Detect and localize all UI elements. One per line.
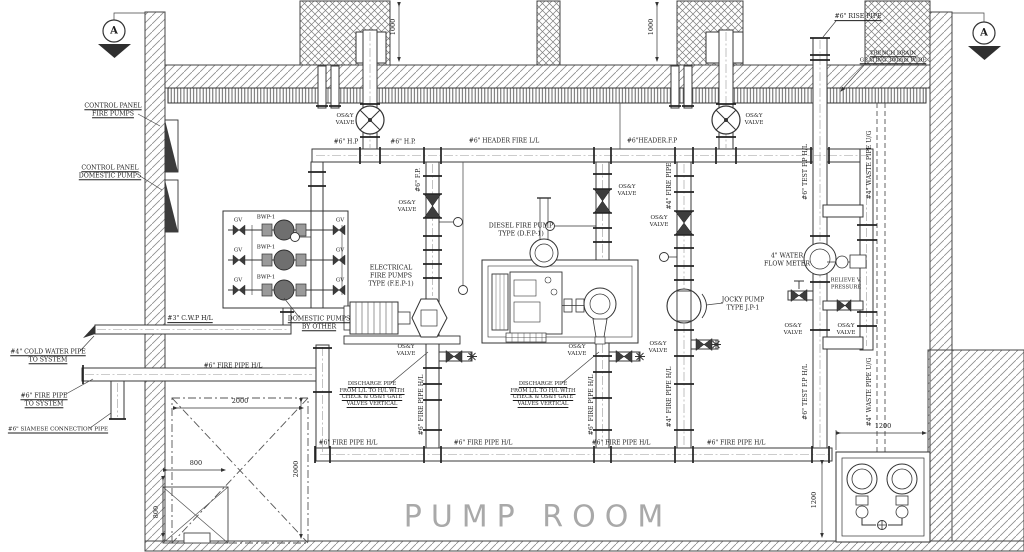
label-osy-valve-riser2: OS&Y VALVE <box>618 184 637 198</box>
label-bwp-1: BWP-1 <box>257 215 275 222</box>
label-header-fire: #6" HEADER FIRE L/L <box>469 137 539 145</box>
label-hp-2: #6" H.P. <box>390 138 415 146</box>
label-bwp-3: BWP-1 <box>257 275 275 282</box>
dim-800-top: 800 <box>190 459 202 467</box>
label-waste-pipe-bottom: #4" WASTE PIPE U/G <box>866 358 874 427</box>
label-discharge-note-2: DISCHARGE PIPE FROM L/L TO H/L WITH CHEC… <box>510 381 575 407</box>
label-control-panel-fire-pumps: CONTROL PANEL FIRE PUMPS <box>84 102 141 118</box>
label-electrical-fire-pumps: ELECTRICAL FIRE PUMPS TYPE (F.E.P-1) <box>368 264 413 287</box>
label-rise-pipe: #6" RISE PIPE <box>834 13 881 21</box>
label-osy-valve-riser2-bottom: OS&Y VALVE <box>568 344 587 358</box>
label-fire-pipe-to-system: #6" FIRE PIPE TO SYSTEM <box>20 392 67 408</box>
dim-2000-top: 2000 <box>232 397 249 405</box>
label-header-fp: #6"HEADER.F.P <box>627 137 677 145</box>
label-test-fp-top: #6" TEST F.P H/L <box>802 144 810 200</box>
room-title: PUMP ROOM <box>404 500 673 535</box>
label-fire6-riser2: #6" FIRE PIPE H/L <box>588 375 596 436</box>
dim-1200-left: 1200 <box>810 492 818 509</box>
label-siamese-connection-pipe: #6" SIAMESE CONNECTION PIPE <box>8 427 108 434</box>
label-gv-1: GV <box>234 218 242 225</box>
label-fire4-riser-bottom: #4" FIRE PIPE H/L <box>666 367 674 428</box>
label-fp-riser: #6" F.P. <box>415 168 423 192</box>
label-waste-pipe-top: #4" WASTE PIPE U/G <box>866 131 874 200</box>
label-test-fp-bottom: #6" TEST F.P H/L <box>802 364 810 420</box>
label-cold-water-pipe-to-system: #4" COLD WATER PIPE TO SYSTEM <box>10 348 86 364</box>
label-fire6-h4: #6" FIRE PIPE H/L <box>204 362 263 370</box>
label-discharge-note-1: DISCHARGE PIPE FROM L/L TO H/L WITH CHEC… <box>339 381 404 407</box>
label-fire6-main-2: #6" FIRE PIPE H/L <box>454 439 513 447</box>
label-relieve-pressure: RELIEVE V. PRESSURE <box>831 278 862 291</box>
label-osy-valve-riser1-bottom: OS&Y VALVE <box>397 344 416 358</box>
pump-room-plan-drawing: CONTROL PANEL FIRE PUMPSCONTROL PANEL DO… <box>0 0 1024 552</box>
dim-800-left: 800 <box>152 506 160 518</box>
label-gv-5: GV <box>336 248 344 255</box>
dim-2000-right: 2000 <box>292 461 300 478</box>
dim-1000-right: 1000 <box>647 19 655 36</box>
label-osy-valve-meter-left: OS&Y VALVE <box>784 323 803 337</box>
label-fire6-riser1: #6" FIRE PIPE H/L <box>418 375 426 436</box>
label-osy-valve-jockey: OS&Y VALVE <box>650 215 669 229</box>
label-osy-valve-meter-right: OS&Y VALVE <box>837 323 856 337</box>
label-water-flow-meter: 4" WATER FLOW METER <box>764 252 810 268</box>
label-gv-4: GV <box>336 218 344 225</box>
label-control-panel-domestic-pumps: CONTROL PANEL DOMESTIC PUMPS <box>79 164 141 180</box>
label-domestic-pumps-by-other: DOMESTIC PUMPS BY OTHER <box>288 315 350 331</box>
label-hp-1: #6" H.P <box>334 138 359 146</box>
label-cwp-hl: #3" C.W.P H/L <box>167 315 212 323</box>
label-bwp-2: BWP-1 <box>257 245 275 252</box>
label-osy-valve-jockey-bottom: OS&Y VALVE <box>649 341 668 355</box>
label-gv-2: GV <box>234 248 242 255</box>
labels-layer: CONTROL PANEL FIRE PUMPSCONTROL PANEL DO… <box>0 0 1024 552</box>
label-osy-valve-top-right: OS&Y VALVE <box>745 113 764 127</box>
label-gv-6: GV <box>336 278 344 285</box>
label-gv-3: GV <box>234 278 242 285</box>
label-osy-valve-riser1: OS&Y VALVE <box>398 200 417 214</box>
section-marker-letter-left: A <box>110 26 118 37</box>
dim-1200-top: 1200 <box>875 422 892 430</box>
label-fire-pipe-4: #4" FIRE PIPE <box>666 162 674 209</box>
label-trench-drain: TRENCH DRAIN GRATING 300mm WIDE <box>860 50 927 64</box>
label-osy-valve-top-left: OS&Y VALVE <box>336 113 355 127</box>
label-fire6-main-3: #6" FIRE PIPE H/L <box>592 439 651 447</box>
label-fire6-main-4: #6" FIRE PIPE H/L <box>707 439 766 447</box>
section-marker-letter-right: A <box>980 28 988 39</box>
dim-1000-left: 1000 <box>389 19 397 36</box>
label-fire6-main-1: #6" FIRE PIPE H/L <box>319 439 378 447</box>
label-jockey-pump: JOCKY PUMP TYPE J.P-1 <box>722 296 765 312</box>
label-diesel-fire-pump: DIESEL FIRE PUMP TYPE (D.F.P-1) <box>489 222 553 238</box>
